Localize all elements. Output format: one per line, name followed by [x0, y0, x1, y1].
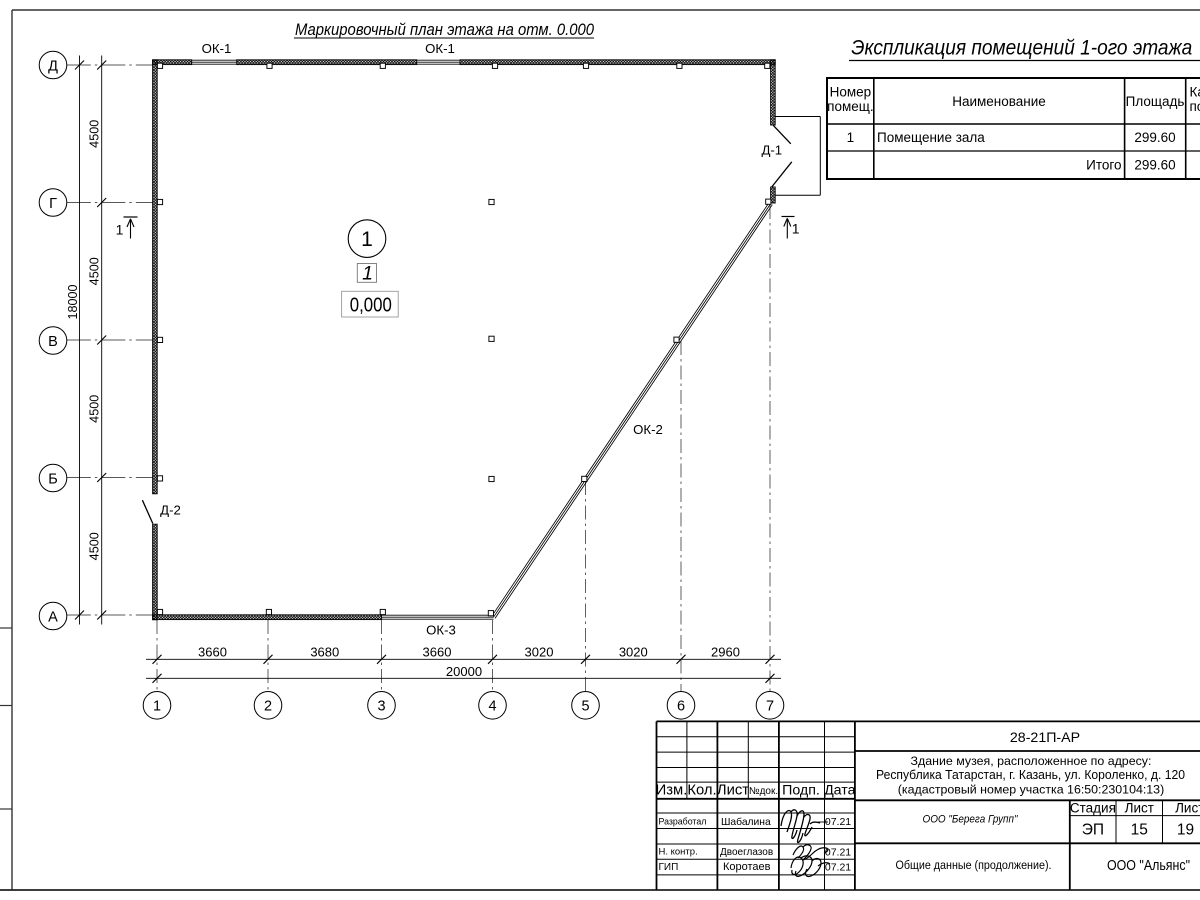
svg-text:Коротаев: Коротаев: [723, 861, 771, 873]
svg-text:Г: Г: [49, 196, 57, 212]
svg-text:Д: Д: [48, 58, 58, 74]
svg-text:Шабалина: Шабалина: [721, 816, 771, 828]
svg-text:ОК-1: ОК-1: [202, 41, 232, 56]
svg-text:299.60: 299.60: [1134, 158, 1175, 173]
svg-text:Лист: Лист: [1125, 801, 1154, 816]
svg-text:3660: 3660: [198, 645, 227, 660]
svg-text:1: 1: [153, 699, 161, 715]
svg-text:ОК-2: ОК-2: [633, 422, 663, 437]
svg-text:5: 5: [581, 699, 589, 715]
svg-text:Изм.: Изм.: [656, 783, 688, 799]
svg-text:Ка: Ка: [1190, 85, 1200, 100]
svg-text:по: по: [1190, 99, 1200, 114]
svg-text:ООО "Альянс": ООО "Альянс": [1107, 857, 1190, 874]
svg-text:2960: 2960: [711, 645, 740, 660]
svg-text:4: 4: [488, 699, 496, 715]
svg-text:2: 2: [264, 699, 272, 715]
svg-text:28-21П-АР: 28-21П-АР: [1010, 730, 1080, 746]
svg-text:Маркировочный план этажа на от: Маркировочный план этажа на отм. 0.000: [295, 21, 595, 39]
svg-text:Республика Татарстан, г. Казан: Республика Татарстан, г. Казань, ул. Кор…: [876, 768, 1185, 782]
svg-text:299.60: 299.60: [1134, 130, 1175, 145]
svg-text:Площадь: Площадь: [1126, 94, 1185, 109]
svg-text:7: 7: [766, 699, 774, 715]
svg-text:А: А: [48, 609, 58, 625]
svg-text:3660: 3660: [423, 645, 452, 660]
svg-text:1: 1: [361, 228, 373, 251]
svg-text:07.21: 07.21: [825, 816, 851, 828]
svg-text:Н. контр.: Н. контр.: [659, 847, 698, 858]
svg-text:Двоеглазов: Двоеглазов: [720, 847, 773, 858]
svg-text:4500: 4500: [88, 257, 102, 285]
svg-text:07.21: 07.21: [825, 846, 851, 858]
svg-text:15: 15: [1131, 822, 1148, 839]
svg-text:ОК-1: ОК-1: [425, 41, 455, 56]
svg-text:Помещение зала: Помещение зала: [877, 130, 985, 145]
svg-text:4500: 4500: [88, 532, 102, 560]
svg-text:ГИП: ГИП: [659, 862, 679, 873]
svg-text:Кол.: Кол.: [687, 783, 716, 799]
svg-text:ЭП: ЭП: [1082, 822, 1104, 839]
svg-text:4500: 4500: [88, 120, 102, 148]
svg-text:1: 1: [362, 263, 373, 285]
svg-text:Общие данные (продолжение).: Общие данные (продолжение).: [896, 858, 1052, 872]
svg-text:Стадия: Стадия: [1070, 801, 1116, 816]
svg-text:3020: 3020: [525, 645, 554, 660]
svg-text:Здание музея, расположенное по: Здание музея, расположенное по адресу:: [911, 754, 1152, 768]
svg-text:Д-2: Д-2: [160, 503, 181, 518]
svg-text:В: В: [48, 334, 58, 350]
svg-text:ОК-3: ОК-3: [426, 623, 456, 638]
svg-text:ООО "Берега Групп": ООО "Берега Групп": [923, 814, 1019, 826]
svg-text:1: 1: [792, 221, 800, 237]
svg-text:18000: 18000: [66, 284, 80, 319]
svg-text:(кадастровый номер участка 16:: (кадастровый номер участка 16:50:230104:…: [898, 782, 1164, 796]
svg-text:19: 19: [1177, 822, 1194, 839]
svg-text:Разработал: Разработал: [659, 817, 707, 827]
svg-text:Экспликация помещений 1-ого эт: Экспликация помещений 1-ого этажа: [851, 37, 1192, 60]
svg-text:Итого: Итого: [1086, 158, 1121, 173]
svg-text:Лист: Лист: [717, 783, 749, 799]
svg-text:№док.: №док.: [749, 786, 778, 797]
svg-text:4500: 4500: [88, 395, 102, 423]
svg-text:3680: 3680: [310, 645, 339, 660]
svg-text:3: 3: [377, 699, 385, 715]
svg-text:Листов: Листов: [1175, 801, 1200, 816]
svg-text:0,000: 0,000: [350, 295, 392, 317]
svg-text:1: 1: [847, 130, 855, 145]
svg-text:20000: 20000: [446, 664, 482, 679]
svg-text:помещ.: помещ.: [827, 99, 873, 114]
svg-text:Номер: Номер: [830, 85, 872, 100]
svg-text:1: 1: [116, 222, 124, 238]
svg-text:3020: 3020: [619, 645, 648, 660]
svg-text:Б: Б: [48, 471, 58, 487]
svg-text:Дата: Дата: [824, 783, 856, 799]
svg-text:Д-1: Д-1: [761, 143, 782, 158]
svg-text:Подп.: Подп.: [782, 783, 820, 799]
svg-text:Наименование: Наименование: [952, 94, 1046, 109]
svg-text:6: 6: [677, 699, 685, 715]
